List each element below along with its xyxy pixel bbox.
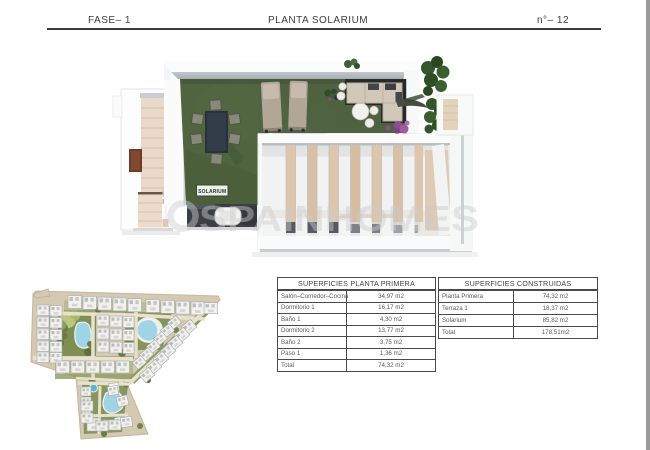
svg-text:SPAINHOMES: SPAINHOMES [199, 198, 479, 239]
svg-text:SOLARIUM: SOLARIUM [198, 189, 226, 195]
